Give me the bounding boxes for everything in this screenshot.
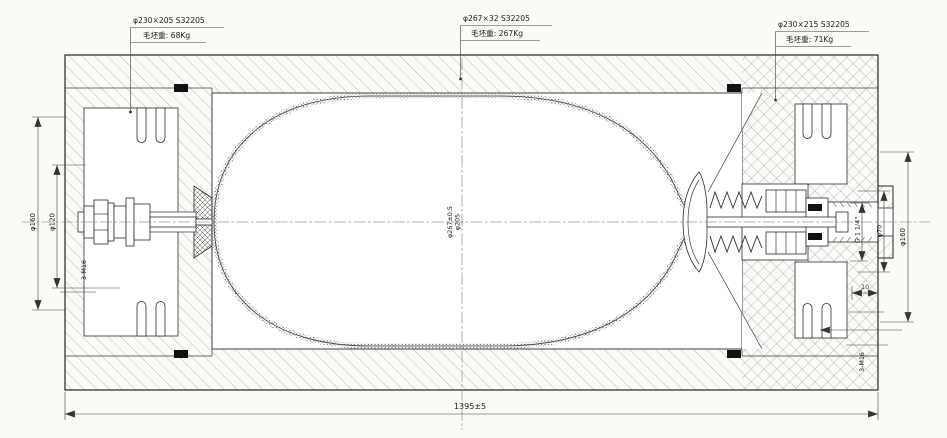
dim-port-bore-label: φ70 — [876, 225, 884, 237]
dim-overall-length-label: 1395±5 — [454, 402, 486, 411]
o-ring-seal — [727, 350, 741, 358]
dim-overall-length: 1395±5 — [65, 392, 878, 420]
o-ring-seal — [174, 84, 188, 92]
stud-bolt — [822, 104, 831, 139]
callout-spec: φ267×32 S32205 — [463, 14, 530, 23]
stud-bolt — [822, 304, 831, 339]
engineering-drawing: φ160 φ120 3-M16 φ267±0.5 φ205 G 1 1/4" — [0, 0, 947, 438]
stud-bolt — [156, 302, 165, 337]
dim-left-bolt-circle-label: φ120 — [49, 213, 57, 231]
drawing-sheet: φ160 φ120 3-M16 φ267±0.5 φ205 G 1 1/4" — [0, 0, 947, 438]
stud-bolt — [803, 104, 812, 139]
stem-seal — [808, 233, 822, 240]
leader-dot — [129, 111, 132, 114]
stem-seal — [808, 204, 822, 211]
stud-bolt — [803, 304, 812, 339]
o-ring-seal — [174, 350, 188, 358]
dim-left-boss-label: φ160 — [29, 213, 37, 231]
leader-dot — [774, 99, 777, 102]
o-ring-seal — [727, 84, 741, 92]
dim-left-boss: φ160 — [29, 117, 66, 310]
callout-spec: φ230×215 S32205 — [778, 20, 850, 29]
dim-port-thread-label: G 1 1/4" — [854, 217, 862, 243]
callout-spec: φ230×205 S32205 — [133, 16, 205, 25]
leader-dot — [459, 78, 462, 81]
stud-bolt — [137, 302, 146, 337]
dim-right-studs-label: 3-M16 — [858, 352, 866, 372]
callout-weight: 毛坯重: 267Kg — [471, 28, 523, 38]
callout-weight: 毛坯重: 71Kg — [786, 34, 833, 44]
stud-bolt — [137, 108, 146, 143]
dim-boss-offset-label: 10 — [861, 283, 869, 291]
dim-right-boss-label: φ160 — [899, 228, 907, 246]
stud-bolt — [156, 108, 165, 143]
dim-left-studs-label: 3-M16 — [80, 260, 88, 280]
callout-weight: 毛坯重: 68Kg — [143, 30, 190, 40]
dim-shell-id-label: φ205 — [454, 214, 462, 230]
